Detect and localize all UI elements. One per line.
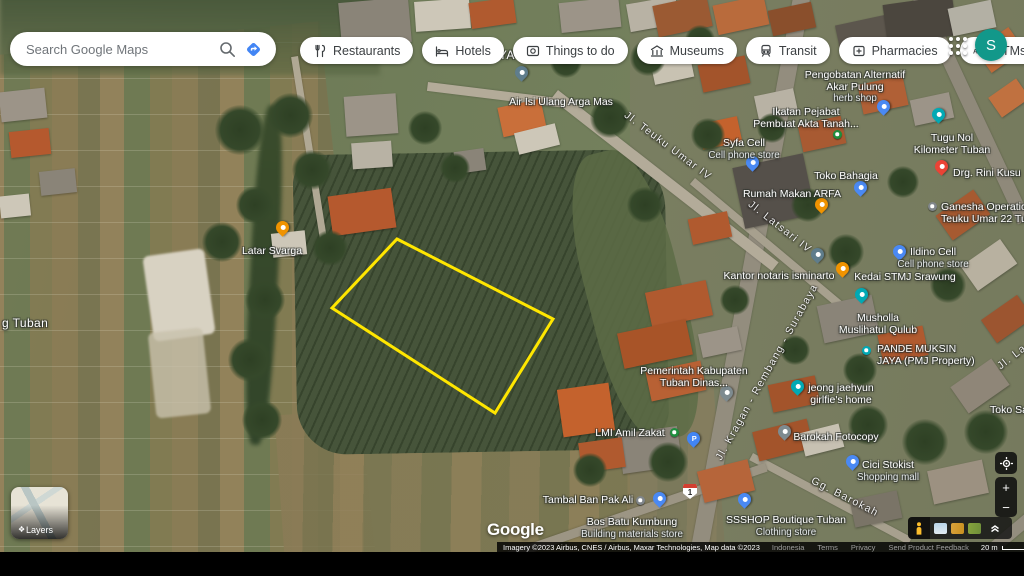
poi-pin-graypin[interactable] xyxy=(775,422,793,440)
poi-pin-blue[interactable] xyxy=(735,490,753,508)
map-label[interactable]: Air Isi Ulang Arga Mas xyxy=(509,97,613,109)
map-label[interactable]: MushollaMuslihatul Qulub xyxy=(839,313,917,336)
letterbox-bar xyxy=(0,552,1024,576)
imagery-thumbnail-field[interactable] xyxy=(968,523,981,534)
zoom-out-button[interactable]: − xyxy=(995,497,1017,517)
pegman-icon[interactable] xyxy=(908,517,930,539)
zoom-in-button[interactable]: + xyxy=(995,477,1017,497)
poi-pin-blue[interactable] xyxy=(650,489,668,507)
chip-label: Hotels xyxy=(455,44,490,58)
attribution-link-send-product-feedback[interactable]: Send Product Feedback xyxy=(888,543,968,552)
map-label[interactable]: Pemerintah KabupatenTuban Dinas... xyxy=(640,366,747,389)
route-shield: 1 xyxy=(683,484,697,499)
map-label[interactable]: Ganesha OperationTeuku Umar 22 Tuba... xyxy=(941,202,1024,225)
map-label[interactable]: Kantor notaris isminarto xyxy=(724,271,835,283)
google-apps-icon[interactable] xyxy=(948,36,968,56)
poi-dot-dotgray[interactable] xyxy=(636,496,645,505)
google-logo: Google xyxy=(487,520,544,540)
poi-pin-teal[interactable] xyxy=(788,377,806,395)
street-label: Jl. Teuku Umar IV xyxy=(622,109,714,183)
attribution-bar: Imagery ©2023 Airbus, CNES / Airbus, Max… xyxy=(497,542,1024,553)
chip-transit[interactable]: Transit xyxy=(746,37,830,64)
search-input[interactable]: Search Google Maps xyxy=(26,42,214,57)
map-labels-layer: Air Isi Ulang Arga MasPengobatan Alterna… xyxy=(0,0,1024,576)
pharmacies-icon xyxy=(852,44,866,58)
imagery-toolbar xyxy=(908,517,1012,539)
map-label[interactable]: PANDE MUKSINJAYA (PMJ Property) xyxy=(877,344,975,367)
map-label[interactable]: SSSHOP Boutique TubanClothing store xyxy=(726,515,846,538)
map-label[interactable]: Rumah Makan ARFA xyxy=(743,189,841,201)
attribution-link-indonesia[interactable]: Indonesia xyxy=(772,543,805,552)
poi-pin-yellow[interactable] xyxy=(833,259,851,277)
street-label: Jl. La xyxy=(995,342,1024,372)
map-label[interactable]: Pengobatan AlternatifAkar Pulungherb sho… xyxy=(805,70,905,105)
map-label[interactable]: Toko Bahagia xyxy=(814,171,878,183)
zoom-controls: + − xyxy=(995,477,1017,517)
map-canvas[interactable]: Air Isi Ulang Arga MasPengobatan Alterna… xyxy=(0,0,1024,576)
attribution-links: IndonesiaTermsPrivacySend Product Feedba… xyxy=(772,543,969,552)
hotels-icon xyxy=(435,44,449,58)
poi-dot-dotgreen[interactable] xyxy=(833,130,842,139)
map-label[interactable]: Barokah Fotocopy xyxy=(793,432,878,444)
map-label[interactable]: Tambal Ban Pak Ali xyxy=(543,495,633,507)
directions-icon[interactable] xyxy=(240,36,266,62)
chip-things-to-do[interactable]: Things to do xyxy=(513,37,628,64)
chip-label: Pharmacies xyxy=(872,44,938,58)
chip-label: Museums xyxy=(670,44,724,58)
imagery-credit: Imagery ©2023 Airbus, CNES / Airbus, Max… xyxy=(503,543,760,552)
museums-icon xyxy=(650,44,664,58)
map-label[interactable]: Drg. Rini Kusu xyxy=(953,168,1021,180)
scale-bar xyxy=(1002,546,1024,550)
map-label[interactable]: jeong jaehyungirlfie's home xyxy=(808,383,873,406)
map-label[interactable]: Tugu NolKilometer Tuban xyxy=(914,133,990,156)
imagery-thumbnail-sky[interactable] xyxy=(934,523,947,534)
street-label: Jl. Latsari IV xyxy=(746,198,814,255)
transit-icon xyxy=(759,44,773,58)
category-chips-row: RestaurantsHotelsThings to doMuseumsTran… xyxy=(300,37,1024,64)
attribution-link-privacy[interactable]: Privacy xyxy=(851,543,876,552)
poi-dot-dotteal[interactable] xyxy=(862,346,871,355)
chip-hotels[interactable]: Hotels xyxy=(422,37,503,64)
map-label[interactable]: LMI Amil Zakat xyxy=(595,428,664,440)
map-label[interactable]: Bos Batu KumbungBuilding materials store xyxy=(581,517,683,540)
map-label[interactable]: Ikatan PejabatPembuat Akta Tanah... xyxy=(753,107,858,130)
poi-pin-teal[interactable] xyxy=(929,105,947,123)
chip-label: Restaurants xyxy=(333,44,400,58)
scale-control: 20 m xyxy=(981,543,1024,552)
things-to-do-icon xyxy=(526,44,540,58)
poi-dot-dotgreen[interactable] xyxy=(670,428,679,437)
poi-pin-parking[interactable]: P xyxy=(684,429,702,447)
restaurants-icon xyxy=(313,44,327,58)
chip-pharmacies[interactable]: Pharmacies xyxy=(839,37,951,64)
scale-label: 20 m xyxy=(981,543,998,552)
my-location-button[interactable] xyxy=(995,452,1017,474)
map-label[interactable]: Ildino CellCell phone store xyxy=(897,247,968,270)
imagery-thumbnail-sand[interactable] xyxy=(951,523,964,534)
map-label[interactable]: Kedai STMJ Srawung xyxy=(854,272,956,284)
poi-pin-red[interactable] xyxy=(932,157,950,175)
map-label[interactable]: Latar Svarga xyxy=(242,246,302,258)
poi-dot-dotgray[interactable] xyxy=(928,202,937,211)
search-bar[interactable]: Search Google Maps xyxy=(10,32,276,66)
search-icon[interactable] xyxy=(214,36,240,62)
chevron-up-icon[interactable] xyxy=(989,522,1001,534)
avatar-letter: S xyxy=(986,37,996,54)
layers-control[interactable]: ❖ Layers xyxy=(11,487,68,539)
layers-label: Layers xyxy=(11,525,68,535)
chip-restaurants[interactable]: Restaurants xyxy=(300,37,413,64)
chip-museums[interactable]: Museums xyxy=(637,37,737,64)
map-label[interactable]: Toko Sa xyxy=(990,405,1024,417)
chip-label: Things to do xyxy=(546,44,615,58)
account-avatar[interactable]: S xyxy=(975,29,1007,61)
poi-pin-slate[interactable] xyxy=(512,63,530,81)
map-label[interactable]: Cici StokistShopping mall xyxy=(857,460,919,483)
attribution-link-terms[interactable]: Terms xyxy=(817,543,837,552)
poi-pin-yellow[interactable] xyxy=(273,218,291,236)
poi-pin-teal[interactable] xyxy=(852,285,870,303)
map-label[interactable]: g Tuban xyxy=(2,318,48,330)
chip-label: Transit xyxy=(779,44,817,58)
map-label[interactable]: Syfa CellCell phone store xyxy=(708,138,779,161)
